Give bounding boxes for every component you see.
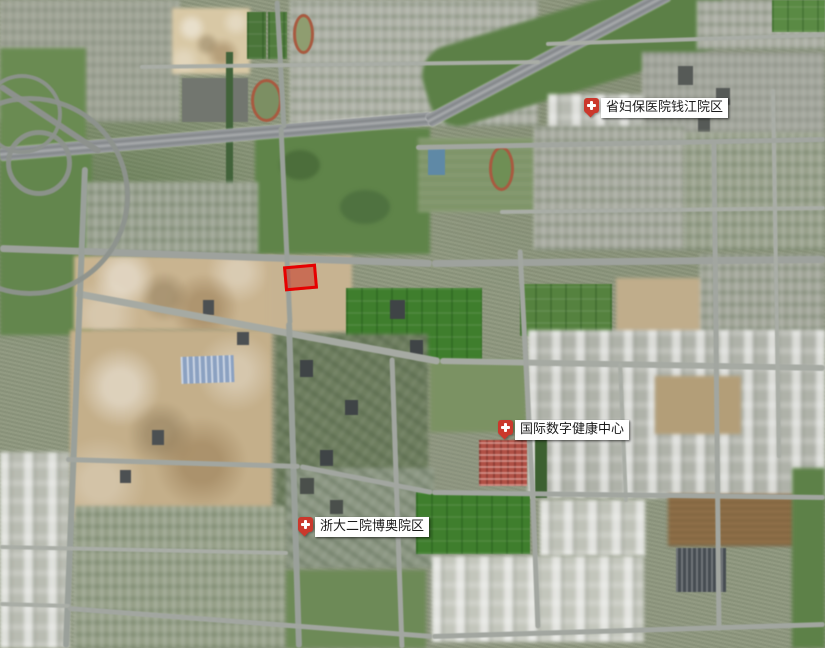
poi-label: 省妇保医院钱江院区 (601, 98, 728, 118)
road (68, 606, 432, 639)
poi-marker-shengfubao-hospital[interactable]: 省妇保医院钱江院区 (584, 98, 728, 118)
road-ramp (0, 96, 130, 296)
road (75, 290, 440, 365)
marker-tail (586, 108, 596, 118)
road (286, 322, 302, 648)
road (771, 89, 781, 458)
marker-tail (300, 527, 310, 537)
marker-tail (500, 430, 510, 440)
road (432, 490, 825, 500)
road (300, 464, 433, 495)
road (390, 357, 405, 648)
hospital-cross-icon (498, 420, 513, 435)
road (66, 457, 300, 469)
road (531, 498, 541, 628)
road (0, 545, 288, 555)
road (432, 256, 825, 267)
hospital-cross-icon (298, 517, 313, 532)
satellite-map[interactable]: 省妇保医院钱江院区 国际数字健康中心 浙大二院博奥院区 (0, 0, 825, 648)
road (518, 249, 536, 500)
road (140, 60, 540, 69)
poi-label: 浙大二院博奥院区 (315, 517, 429, 537)
road (0, 602, 70, 608)
poi-label: 国际数字健康中心 (515, 420, 629, 440)
selected-parcel-outline[interactable] (283, 264, 318, 292)
hospital-cross-icon (584, 98, 599, 113)
poi-marker-zheda-2nd-hospital-boao[interactable]: 浙大二院博奥院区 (298, 517, 429, 537)
road (279, 126, 293, 324)
road (712, 141, 722, 630)
poi-marker-intl-digital-health-center[interactable]: 国际数字健康中心 (498, 420, 629, 440)
road (416, 137, 825, 150)
road (432, 622, 825, 639)
road (440, 358, 825, 371)
